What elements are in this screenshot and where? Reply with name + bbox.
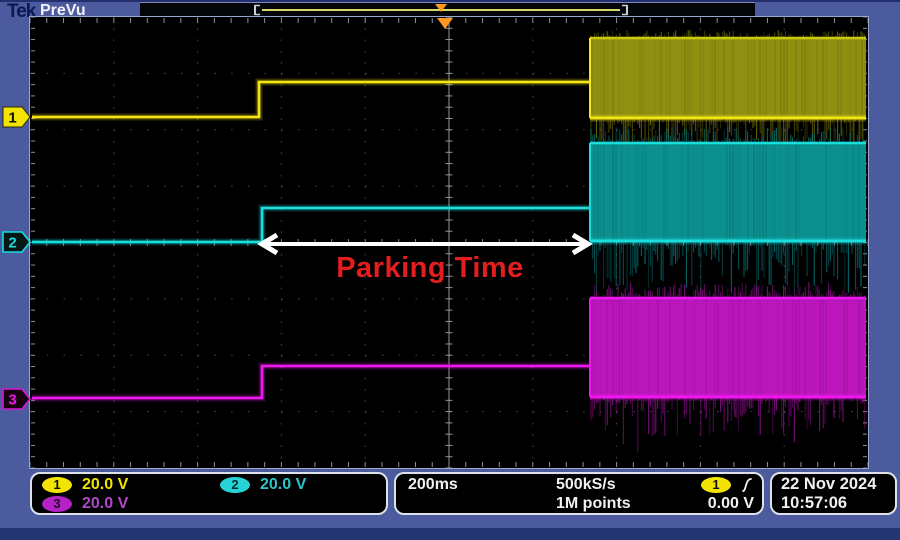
channel-1-badge: 1 <box>42 477 72 493</box>
channel-2-marker-icon: 2 <box>2 230 32 254</box>
waveform-display: Parking Time <box>29 16 869 469</box>
bottom-edge-strip <box>0 528 900 540</box>
time-readout: 10:57:06 <box>781 494 895 513</box>
channel-2-scale: 20.0 V <box>260 476 380 494</box>
channel-3-scale: 20.0 V <box>82 495 220 513</box>
trigger-level-readout: 0.00 V <box>636 495 754 513</box>
svg-text:1: 1 <box>8 110 16 127</box>
edge-slope-icon <box>740 477 754 493</box>
trigger-source-badge: 1 <box>701 477 731 493</box>
record-length-readout: 1M points <box>556 495 636 513</box>
trigger-source-row: 1 <box>636 477 754 493</box>
svg-text:3: 3 <box>8 392 16 409</box>
datetime-box: 22 Nov 2024 10:57:06 <box>770 472 897 515</box>
sample-rate-readout: 500kS/s <box>556 476 636 494</box>
timebase-readout: 200ms <box>408 476 556 494</box>
channel-1-marker-icon: 1 <box>2 105 32 129</box>
channel-3-marker-icon: 3 <box>2 387 32 411</box>
svg-text:2: 2 <box>8 235 16 252</box>
channel-1-scale: 20.0 V <box>82 476 220 494</box>
channel-3-badge: 3 <box>42 496 72 512</box>
parking-time-label: Parking Time <box>310 252 550 285</box>
status-bar: 1 20.0 V 2 20.0 V 3 20.0 V 200ms 500kS/s… <box>0 472 900 516</box>
channel-2-badge: 2 <box>220 477 250 493</box>
record-view-indicator <box>140 3 755 17</box>
oscilloscope-screen: { "header": { "logo_text": "Tek", "acq_s… <box>0 0 900 540</box>
horizontal-trigger-readout-box: 200ms 500kS/s 1 1M points 0.00 V <box>394 472 764 515</box>
date-readout: 22 Nov 2024 <box>781 475 895 494</box>
graticule-and-waveforms <box>30 17 868 468</box>
channels-readout-box: 1 20.0 V 2 20.0 V 3 20.0 V <box>30 472 388 515</box>
